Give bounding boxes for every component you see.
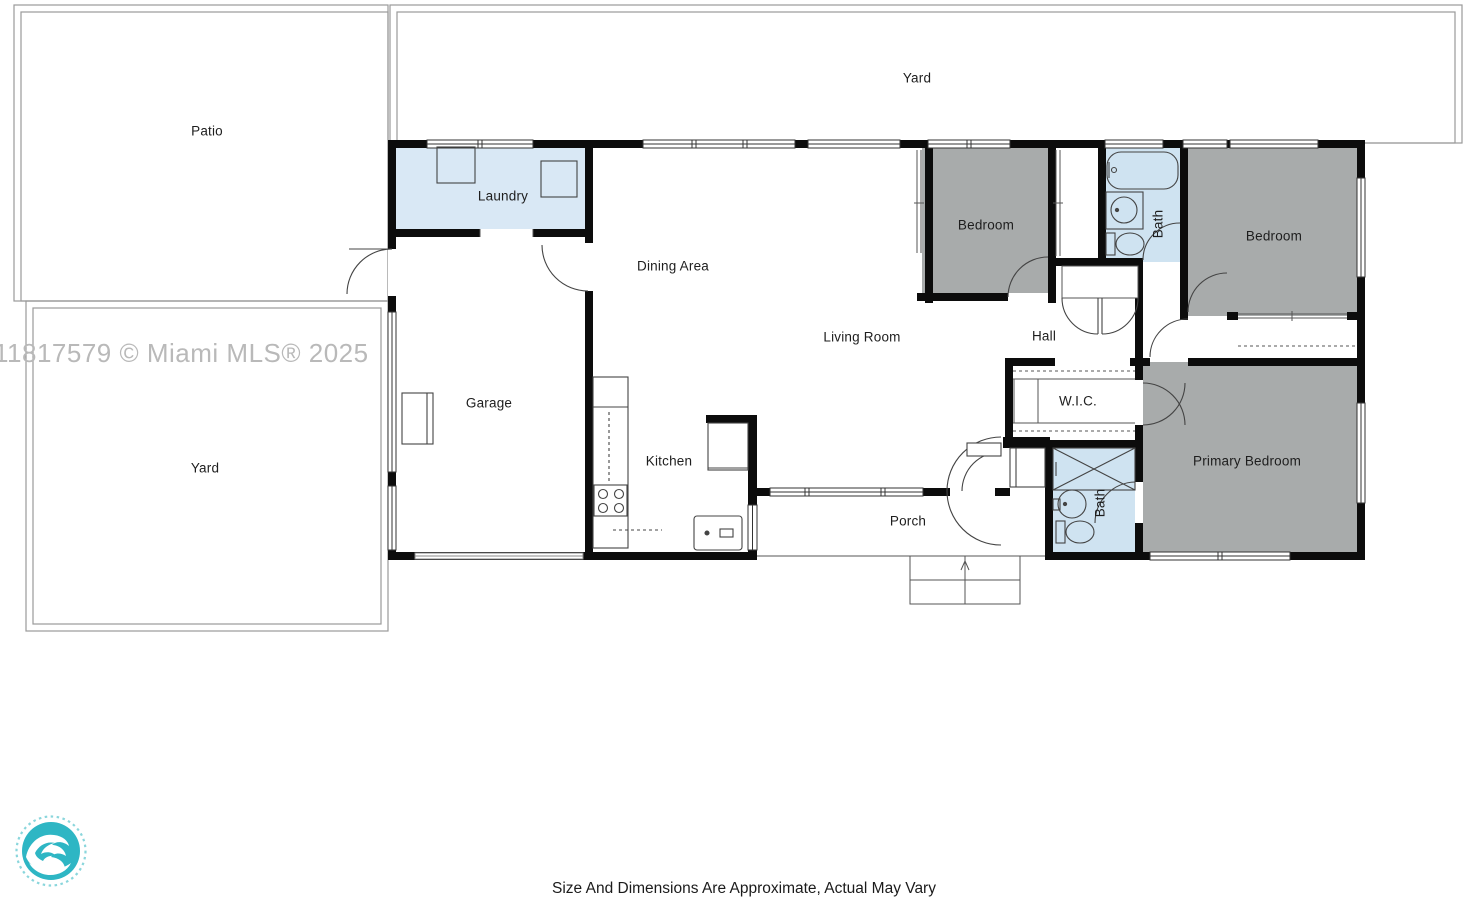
mls-watermark: 11817579 © Miami MLS® 2025 [0, 338, 369, 369]
room-label-porch: Porch [890, 514, 926, 529]
floorplan-canvas: Patio Yard Yard Laundry Dining Area Gara… [0, 0, 1469, 898]
kitchen-sink-icon [694, 516, 742, 550]
water-heater-icon [402, 393, 433, 444]
room-label-bath-bottom: Bath [1093, 489, 1108, 518]
area-label-yard-left: Yard [191, 461, 219, 476]
brand-wave-logo-icon [13, 813, 89, 889]
room-label-bath-top: Bath [1151, 210, 1166, 239]
room-label-bedroom-right: Bedroom [1246, 229, 1302, 244]
room-label-kitchen: Kitchen [646, 454, 692, 469]
room-label-laundry: Laundry [478, 189, 528, 204]
kitchen-counter [593, 377, 628, 548]
kitchen-counter [708, 423, 748, 470]
room-label-primary-bedroom: Primary Bedroom [1193, 454, 1301, 469]
area-label-yard-top: Yard [903, 71, 931, 86]
room-label-garage: Garage [466, 396, 512, 411]
room-label-dining: Dining Area [637, 259, 709, 274]
room-label-bedroom-left: Bedroom [958, 218, 1014, 233]
room-label-hall: Hall [1032, 329, 1056, 344]
room-label-wic: W.I.C. [1059, 394, 1097, 409]
disclaimer-text: Size And Dimensions Are Approximate, Act… [552, 880, 936, 898]
area-label-patio: Patio [191, 124, 223, 139]
room-label-living: Living Room [823, 330, 900, 345]
stove-icon [594, 485, 627, 516]
